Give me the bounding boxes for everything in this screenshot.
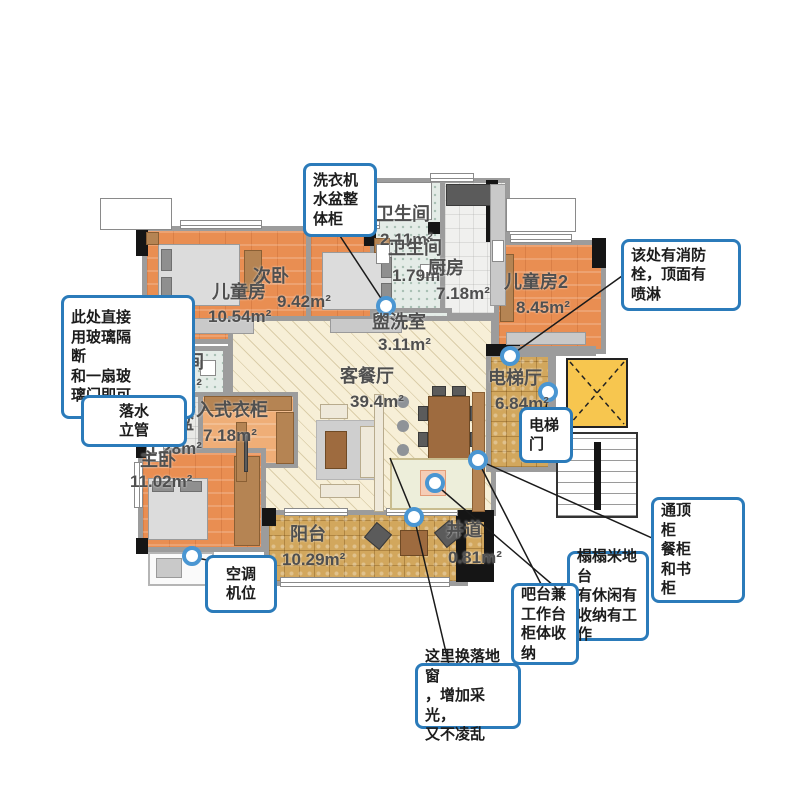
window (180, 220, 262, 229)
wall-segment (510, 346, 596, 356)
wall-column (592, 238, 606, 268)
bar-cabinet[interactable] (472, 392, 485, 512)
callout-bar-counter[interactable]: 吧台兼 工作台 柜体收 纳 (511, 583, 579, 665)
closet-cabinet (276, 412, 294, 464)
room-area-balcony: 10.29m² (282, 551, 345, 568)
ac-outdoor-unit-icon (156, 558, 182, 578)
balcony-window (280, 577, 450, 587)
pillow (381, 283, 392, 304)
room-label-balcony: 阳台 (290, 525, 326, 543)
room-label-kitchen: 厨房 (428, 259, 464, 277)
room-area-childroom1: 10.54m² (208, 308, 271, 325)
kitchen-sink-icon (492, 240, 504, 262)
dining-table (428, 396, 470, 462)
callout-elevator-door[interactable]: 电梯 门 (519, 407, 573, 463)
room-area-living-dining: 39.4m² (350, 393, 404, 410)
room-area-master-bedroom: 11.02m² (130, 473, 192, 490)
decor-dot (397, 444, 409, 456)
elevator-shaft[interactable] (566, 358, 628, 428)
pillow (161, 249, 172, 271)
room-label-childroom2: 儿童房2 (504, 273, 568, 291)
armchair (320, 404, 348, 419)
wall-column (262, 508, 276, 526)
nightstand (146, 232, 159, 245)
chair (432, 386, 446, 396)
decor-dot (397, 420, 409, 432)
sliding-door (284, 508, 348, 516)
callout-laundry-cabinet[interactable]: 洗衣机 水盆整 体柜 (303, 163, 377, 237)
room-label-shaft: 井道 (446, 521, 482, 539)
room-label-elevator-hall: 电梯厅 (488, 369, 542, 387)
cabinet (506, 332, 586, 345)
chair (418, 406, 428, 421)
window (430, 173, 474, 182)
coffee-table (325, 431, 347, 469)
room-area-kitchen: 7.18m² (436, 285, 490, 302)
room-label-second-bedroom: 次卧 (253, 267, 289, 285)
callout-ceiling-cabinet[interactable]: 通顶 柜 餐柜 和书 柜 (651, 497, 745, 603)
balcony-ledge (506, 198, 576, 232)
bench (320, 484, 360, 498)
elevator-x-icon (568, 360, 626, 426)
room-label-master-bedroom: 主卧 (140, 451, 176, 469)
wall-column (136, 538, 148, 554)
room-label-laundry-room: 盥洗室 (372, 313, 426, 331)
room-divider (374, 394, 384, 512)
room-label-bath-top2: 卫生间 (388, 239, 442, 257)
room-area-second-bedroom: 9.42m² (277, 293, 331, 310)
callout-ac-unit[interactable]: 空调 机位 (205, 555, 277, 613)
callout-french-window[interactable]: 这里换落地窗 ，增加采光， 又不凌乱 (415, 663, 521, 729)
callout-fire-hydrant[interactable]: 该处有消防 栓，顶面有 喷淋 (621, 239, 741, 311)
window-ledge (100, 198, 172, 230)
room-label-living-dining: 客餐厅 (340, 367, 394, 385)
room-balcony[interactable] (264, 510, 468, 586)
window (510, 234, 572, 243)
chair (418, 432, 428, 447)
stairs-divider (594, 442, 601, 510)
stove-icon (446, 184, 492, 206)
room-area-laundry-room: 3.11m² (378, 336, 431, 353)
tatami-cushion (420, 470, 446, 496)
room-area-childroom2: 8.45m² (516, 299, 570, 316)
chair (452, 386, 466, 396)
floorplan-canvas: 儿童房 10.54m² 次卧 9.42m² 卫生间 2.11m² 卫生间 1.7… (0, 0, 800, 800)
callout-tatami[interactable]: 榻榻米地 台 有休闲有 收纳有工 作 (567, 551, 649, 641)
room-area-shaft: 0.81m² (448, 549, 502, 566)
balcony-table (400, 530, 428, 556)
callout-downpipe[interactable]: 落水 立管 (81, 395, 187, 447)
room-label-bath-top1: 卫生间 (376, 205, 430, 223)
room-area-walkin-closet: 7.18m² (203, 427, 257, 444)
